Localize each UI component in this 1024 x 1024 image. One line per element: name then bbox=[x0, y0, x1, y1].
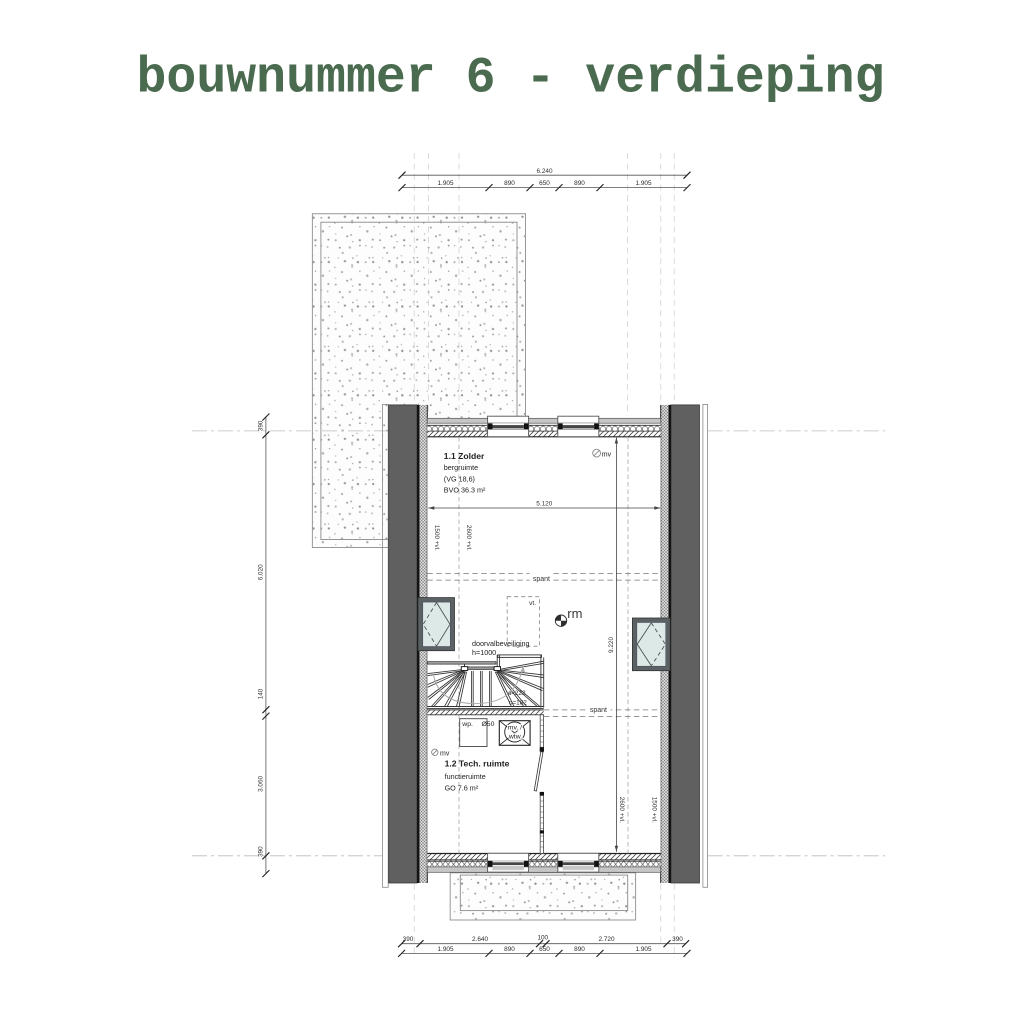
svg-text:Ø50: Ø50 bbox=[482, 721, 495, 728]
svg-text:390: 390 bbox=[403, 936, 414, 943]
svg-text:650: 650 bbox=[539, 946, 550, 953]
svg-text:h=1000: h=1000 bbox=[472, 648, 496, 657]
svg-text:390: 390 bbox=[672, 936, 683, 943]
svg-text:o=182: o=182 bbox=[509, 700, 527, 707]
svg-text:100: 100 bbox=[537, 934, 548, 941]
svg-text:spant: spant bbox=[533, 576, 550, 583]
svg-text:1500 +vl.: 1500 +vl. bbox=[651, 797, 658, 823]
svg-text:GO 7.6 m²: GO 7.6 m² bbox=[445, 784, 479, 793]
svg-text:890: 890 bbox=[504, 180, 515, 187]
svg-text:1.905: 1.905 bbox=[438, 946, 454, 953]
svg-text:2600 +vl.: 2600 +vl. bbox=[465, 525, 472, 551]
svg-text:1.905: 1.905 bbox=[636, 946, 652, 953]
svg-text:mv. /: mv. / bbox=[508, 725, 522, 732]
svg-text:3.060: 3.060 bbox=[258, 775, 265, 791]
svg-text:2.640: 2.640 bbox=[472, 936, 488, 943]
svg-text:mv: mv bbox=[440, 750, 450, 757]
svg-text:140: 140 bbox=[258, 688, 265, 699]
svg-text:wtw.: wtw. bbox=[508, 733, 522, 740]
svg-text:6.240: 6.240 bbox=[537, 168, 553, 175]
svg-text:890: 890 bbox=[574, 180, 585, 187]
svg-text:2.720: 2.720 bbox=[599, 936, 615, 943]
svg-text:rm: rm bbox=[567, 606, 582, 621]
svg-text:vt.: vt. bbox=[529, 600, 536, 607]
svg-text:wp.: wp. bbox=[461, 721, 473, 728]
svg-text:1.1 Zolder: 1.1 Zolder bbox=[444, 451, 485, 461]
svg-text:1500 +vl.: 1500 +vl. bbox=[433, 525, 440, 551]
svg-text:a=222: a=222 bbox=[508, 690, 526, 697]
svg-text:890: 890 bbox=[574, 946, 585, 953]
svg-text:BVO 36.3 m²: BVO 36.3 m² bbox=[444, 485, 486, 494]
svg-text:bouwnummer 6 - verdieping: bouwnummer 6 - verdieping bbox=[137, 51, 885, 108]
svg-text:890: 890 bbox=[504, 946, 515, 953]
svg-text:1.905: 1.905 bbox=[438, 180, 454, 187]
svg-text:650: 650 bbox=[539, 180, 550, 187]
svg-text:1.2 Tech. ruimte: 1.2 Tech. ruimte bbox=[445, 758, 510, 768]
svg-text:(VG 18,6): (VG 18,6) bbox=[444, 474, 475, 483]
svg-text:spant: spant bbox=[590, 707, 607, 714]
svg-text:5.120: 5.120 bbox=[536, 501, 552, 508]
svg-text:390: 390 bbox=[258, 420, 265, 431]
svg-text:mv: mv bbox=[602, 451, 612, 458]
svg-text:1.905: 1.905 bbox=[636, 180, 652, 187]
svg-text:9.220: 9.220 bbox=[608, 637, 615, 653]
svg-text:bergruimte: bergruimte bbox=[444, 463, 478, 472]
svg-text:6.020: 6.020 bbox=[258, 564, 265, 580]
svg-text:2600 +vl.: 2600 +vl. bbox=[618, 797, 625, 823]
svg-text:functieruimte: functieruimte bbox=[445, 772, 486, 781]
svg-text:390: 390 bbox=[258, 846, 265, 857]
